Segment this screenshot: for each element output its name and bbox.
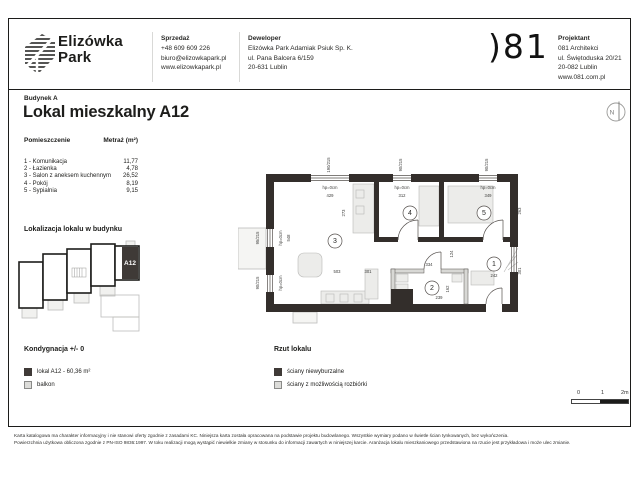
dimension-label: 263 <box>517 207 522 215</box>
dimension-label: hp=0cm <box>278 275 283 291</box>
dimension-label: hp=0cm <box>278 230 283 246</box>
column-area: Metraż (m²) <box>103 137 138 144</box>
sales-label: Sprzedaż <box>161 34 227 44</box>
room-area: 11,77 <box>123 159 138 166</box>
legend-item: ściany z możliwością rozbiórki <box>274 378 367 391</box>
dimension-label: 273 <box>341 209 346 217</box>
room-number: 2 <box>430 285 434 292</box>
room-name: 5 - Sypialnia <box>24 188 57 195</box>
legend-item: ściany niewyburzalne <box>274 365 367 378</box>
designer-contact: Projektant 081 Architekci ul. Świętodusk… <box>558 34 622 83</box>
designer-name: 081 Architekci <box>558 44 622 54</box>
hatch-lines <box>504 248 518 272</box>
designer-label: Projektant <box>558 34 622 44</box>
room-number: 5 <box>482 210 486 217</box>
header: Elizówka Park Sprzedaż +48 609 609 226 b… <box>9 19 630 90</box>
table-row: 1 - Komunikacja11,77 <box>24 159 138 166</box>
dimension-label: 429 <box>327 193 335 198</box>
location-heading: Lokalizacja lokalu w budynku <box>24 226 122 233</box>
dimension-label: 90/215 <box>484 158 489 171</box>
disclaimer: Karta katalogowa ma charakter informacyj… <box>14 433 638 447</box>
dimension-label: 301 <box>365 269 373 274</box>
designer-street: ul. Świętoduska 20/21 <box>558 54 622 64</box>
dimension-label: 334 <box>426 262 434 267</box>
legend-swatch-light <box>274 381 282 389</box>
table-row: 4 - Pokój8,19 <box>24 181 138 188</box>
scale-1: 1 <box>601 390 604 396</box>
map-stairs <box>72 268 86 277</box>
location-legend: lokal A12 - 60,36 m²balkon <box>24 365 90 391</box>
scale-bar-black <box>600 400 628 403</box>
legend-label: balkon <box>37 382 55 388</box>
dimension-label: 242 <box>491 273 499 278</box>
dimension-label: 548 <box>286 234 291 242</box>
brand-name: Elizówka Park <box>58 34 123 66</box>
dimension-label: 90/215 <box>255 276 260 289</box>
dimension-label: 349 <box>485 193 493 198</box>
room-name: 4 - Pokój <box>24 181 48 188</box>
compass-n: N <box>610 110 615 117</box>
developer-street: ul. Pana Balcera 6/159 <box>248 54 353 64</box>
dimension-label: hp=0cm <box>394 185 410 190</box>
dimension-label: 95/215 <box>255 231 260 244</box>
room-name: 2 - Łazienka <box>24 166 57 173</box>
room-name: 1 - Komunikacja <box>24 159 67 166</box>
dimension-label: 90/215 <box>398 158 403 171</box>
designer-city: 20-082 Lublin <box>558 63 622 73</box>
room-area: 9,15 <box>126 188 138 195</box>
kitchen-block <box>391 289 413 308</box>
card-frame: Elizówka Park Sprzedaż +48 609 609 226 b… <box>8 18 631 427</box>
room-area: 4,78 <box>126 166 138 173</box>
rooms-table-header: Pomieszczenie Metraż (m²) <box>24 137 138 144</box>
catalog-card-page: Elizówka Park Sprzedaż +48 609 609 226 b… <box>0 0 640 480</box>
table-row: 3 - Salon z aneksem kuchennym26,52 <box>24 173 138 180</box>
legend-swatch-light <box>24 381 32 389</box>
dimension-label: 124 <box>449 250 454 258</box>
plan-legend: ściany niewyburzalneściany z możliwością… <box>274 365 367 391</box>
legend-item: lokal A12 - 60,36 m² <box>24 365 90 378</box>
header-divider <box>152 32 153 82</box>
legend-label: lokal A12 - 60,36 m² <box>37 369 90 375</box>
scale-2m: 2m <box>621 390 629 396</box>
dimension-label: 503 <box>334 269 342 274</box>
dimension-label: hp=0cm <box>480 185 496 190</box>
dimension-label: 190/215 <box>326 157 331 173</box>
legend-label: ściany z możliwością rozbiórki <box>287 382 367 388</box>
legend-item: balkon <box>24 378 90 391</box>
developer-city: 20-631 Lublin <box>248 63 353 73</box>
developer-contact: Deweloper Elizówka Park Adamiak Psiuk Sp… <box>248 34 353 73</box>
architect-081-logo: )81 <box>488 27 549 66</box>
floor-plan: 190/21590/21590/215hp=0cm429hp=0cm312hp=… <box>238 156 538 326</box>
building-location-map: A12 <box>16 240 146 340</box>
scale-0: 0 <box>577 390 580 396</box>
dimension-label: 162 <box>445 285 450 293</box>
map-unit-label: A12 <box>124 260 136 267</box>
brand-line2: Park <box>58 50 123 66</box>
developer-label: Deweloper <box>248 34 353 44</box>
plan-heading: Rzut lokalu <box>274 346 311 353</box>
room-number: 1 <box>492 261 496 268</box>
column-room: Pomieszczenie <box>24 137 70 144</box>
page-title: Lokal mieszkalny A12 <box>23 103 189 122</box>
legend-label: ściany niewyburzalne <box>287 369 344 375</box>
rooms-table: 1 - Komunikacja11,772 - Łazienka4,783 - … <box>24 159 138 195</box>
floor-label: Kondygnacja +/- 0 <box>24 346 84 353</box>
developer-name: Elizówka Park Adamiak Psiuk Sp. K. <box>248 44 353 54</box>
room-number: 3 <box>333 238 337 245</box>
disclaimer-line1: Karta katalogowa ma charakter informacyj… <box>14 433 638 440</box>
disclaimer-line2: Powierzchnia użytkowa obliczona zgodnie … <box>14 440 638 447</box>
sales-phone: +48 609 609 226 <box>161 44 227 54</box>
table-row: 5 - Sypialnia9,15 <box>24 188 138 195</box>
room-name: 3 - Salon z aneksem kuchennym <box>24 173 111 180</box>
scale-bar-white <box>572 400 600 403</box>
scale-bar <box>571 399 629 404</box>
room-number: 4 <box>408 210 412 217</box>
dimension-label: 301 <box>517 267 522 275</box>
compass-icon: N <box>604 99 628 123</box>
legend-swatch-dark <box>274 368 282 376</box>
dimension-label: 312 <box>399 193 407 198</box>
brand-line1: Elizówka <box>58 34 123 50</box>
brand-logo-icon <box>23 32 57 76</box>
sales-email: biuro@elizowkapark.pl <box>161 54 227 64</box>
room-area: 8,19 <box>126 181 138 188</box>
legend-swatch-dark <box>24 368 32 376</box>
header-divider <box>239 32 240 82</box>
designer-website: www.081.com.pl <box>558 73 622 83</box>
dimension-label: 239 <box>436 295 444 300</box>
table-row: 2 - Łazienka4,78 <box>24 166 138 173</box>
dimension-label: hp=0cm <box>322 185 338 190</box>
sales-contact: Sprzedaż +48 609 609 226 biuro@elizowkap… <box>161 34 227 73</box>
room-area: 26,52 <box>123 173 138 180</box>
building-label: Budynek A <box>24 95 58 102</box>
sales-website: www.elizowkapark.pl <box>161 63 227 73</box>
